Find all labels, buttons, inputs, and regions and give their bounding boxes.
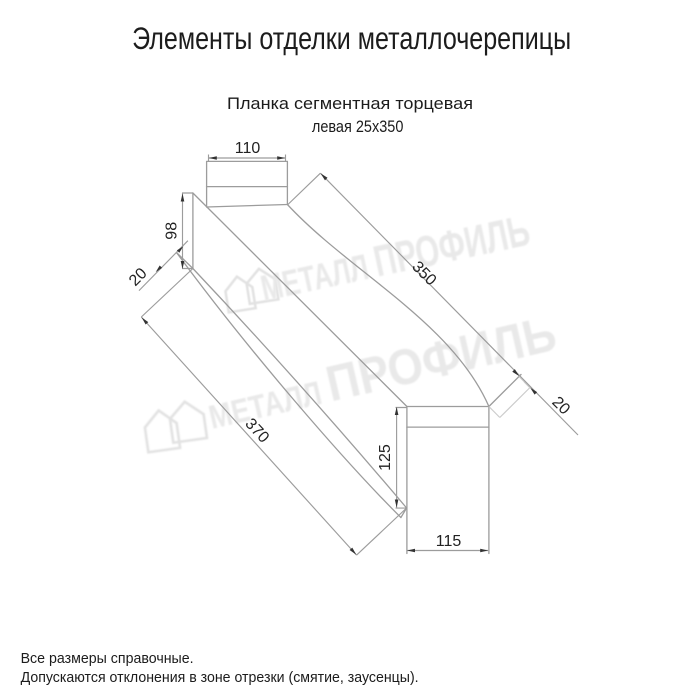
svg-text:Планка сегментная торцевая: Планка сегментная торцевая xyxy=(227,95,473,113)
svg-text:Допускаются отклонения в зоне: Допускаются отклонения в зоне отрезки (с… xyxy=(21,670,419,686)
svg-text:110: 110 xyxy=(235,140,261,157)
svg-text:98: 98 xyxy=(164,222,181,240)
svg-text:20: 20 xyxy=(548,394,573,419)
svg-text:МЕТАЛЛ ПРОФИЛЬ: МЕТАЛЛ ПРОФИЛЬ xyxy=(256,206,534,311)
svg-text:левая 25х350: левая 25х350 xyxy=(312,118,404,136)
svg-text:115: 115 xyxy=(436,533,462,550)
svg-text:Элементы отделки металлочерепи: Элементы отделки металлочерепицы xyxy=(132,20,571,56)
svg-text:20: 20 xyxy=(126,265,151,290)
svg-text:125: 125 xyxy=(377,444,394,471)
svg-text:Все размеры справочные.: Все размеры справочные. xyxy=(21,651,194,667)
